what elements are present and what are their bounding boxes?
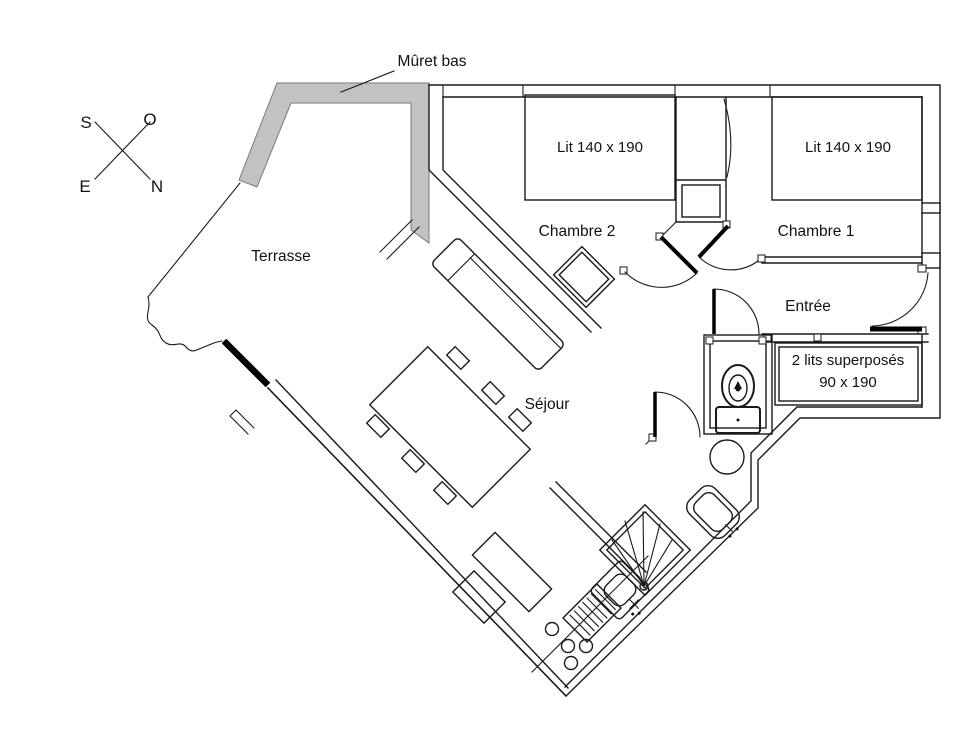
tank-button — [737, 419, 740, 422]
label-chambre2: Chambre 2 — [539, 223, 616, 240]
chair — [367, 415, 390, 438]
kitchen-partition-wall — [550, 482, 646, 578]
label-bunk-line1: 2 lits superposés — [792, 352, 905, 369]
door-wc — [714, 289, 759, 334]
compass: S O E N — [79, 110, 163, 196]
dining-table — [370, 347, 531, 508]
label-chambre1: Chambre 1 — [778, 223, 855, 240]
sejour-furniture — [367, 237, 615, 623]
door-chambre1 — [699, 221, 758, 270]
label-bed-chambre1: Lit 140 x 190 — [805, 139, 891, 156]
chambre1-entree-wall — [762, 257, 922, 263]
floor-plan-svg: S O E N Mûret bas — [0, 0, 967, 730]
chair — [434, 482, 457, 505]
label-bed-chambre2: Lit 140 x 190 — [557, 139, 643, 156]
terrace-door — [224, 341, 268, 385]
doors — [620, 221, 928, 441]
closet-column-walls — [676, 97, 726, 222]
toilet-icon — [716, 365, 760, 433]
closet-shelf — [682, 185, 720, 217]
kitchen-counter-edge — [532, 556, 648, 672]
compass-west: O — [143, 110, 156, 129]
door-swing-arc — [625, 272, 697, 287]
window-pier — [922, 203, 940, 213]
terrace-wavy-edge — [147, 297, 222, 351]
door-swing-arc — [872, 273, 928, 326]
shower-icon — [600, 505, 691, 596]
wardrobe-door-arc — [724, 99, 731, 177]
wc-room — [704, 335, 772, 434]
door-swing-arc — [655, 392, 700, 437]
label-bunk-line2: 90 x 190 — [819, 374, 877, 391]
label-terrasse: Terrasse — [251, 248, 310, 265]
door-swing-arc — [714, 289, 759, 334]
southwest-wall — [268, 380, 568, 696]
compass-north: N — [151, 177, 163, 196]
compass-east: E — [79, 177, 90, 196]
muret-bas-label: Mûret bas — [398, 53, 467, 70]
tv-cabinet — [554, 247, 615, 308]
door-jamb — [758, 255, 765, 262]
chair — [447, 347, 470, 370]
compass-south: S — [80, 113, 91, 132]
chair — [482, 382, 505, 405]
kitchen — [532, 556, 658, 672]
door-leaf — [661, 237, 697, 273]
muret-bas-wall — [239, 83, 429, 243]
washbasin-icon — [710, 440, 744, 474]
wall-stub — [230, 410, 254, 434]
toilet-dot — [736, 387, 741, 392]
interior-walls — [429, 85, 928, 578]
door-entrance — [870, 273, 928, 329]
door-swing-arc — [699, 257, 758, 270]
chair — [402, 450, 425, 473]
door-jamb — [759, 337, 766, 344]
compass-cross-icon — [95, 122, 150, 179]
door-jamb — [814, 334, 821, 341]
door-jamb — [918, 265, 926, 272]
door-bathroom — [649, 392, 700, 441]
floor-plan: S O E N Mûret bas — [0, 0, 967, 730]
door-chambre2 — [620, 233, 697, 287]
bathroom — [600, 440, 748, 595]
room-labels: Terrasse Chambre 2 Chambre 1 Entrée Séjo… — [251, 139, 904, 413]
door-leaf — [699, 226, 728, 257]
label-sejour: Séjour — [525, 396, 570, 413]
door-jamb — [706, 337, 713, 344]
terrace-edge-line — [148, 183, 240, 297]
label-entree: Entrée — [785, 298, 831, 315]
sideboard — [453, 532, 552, 623]
entree-bunkroom-wall — [762, 334, 928, 342]
stove-burners-icon — [546, 623, 593, 670]
